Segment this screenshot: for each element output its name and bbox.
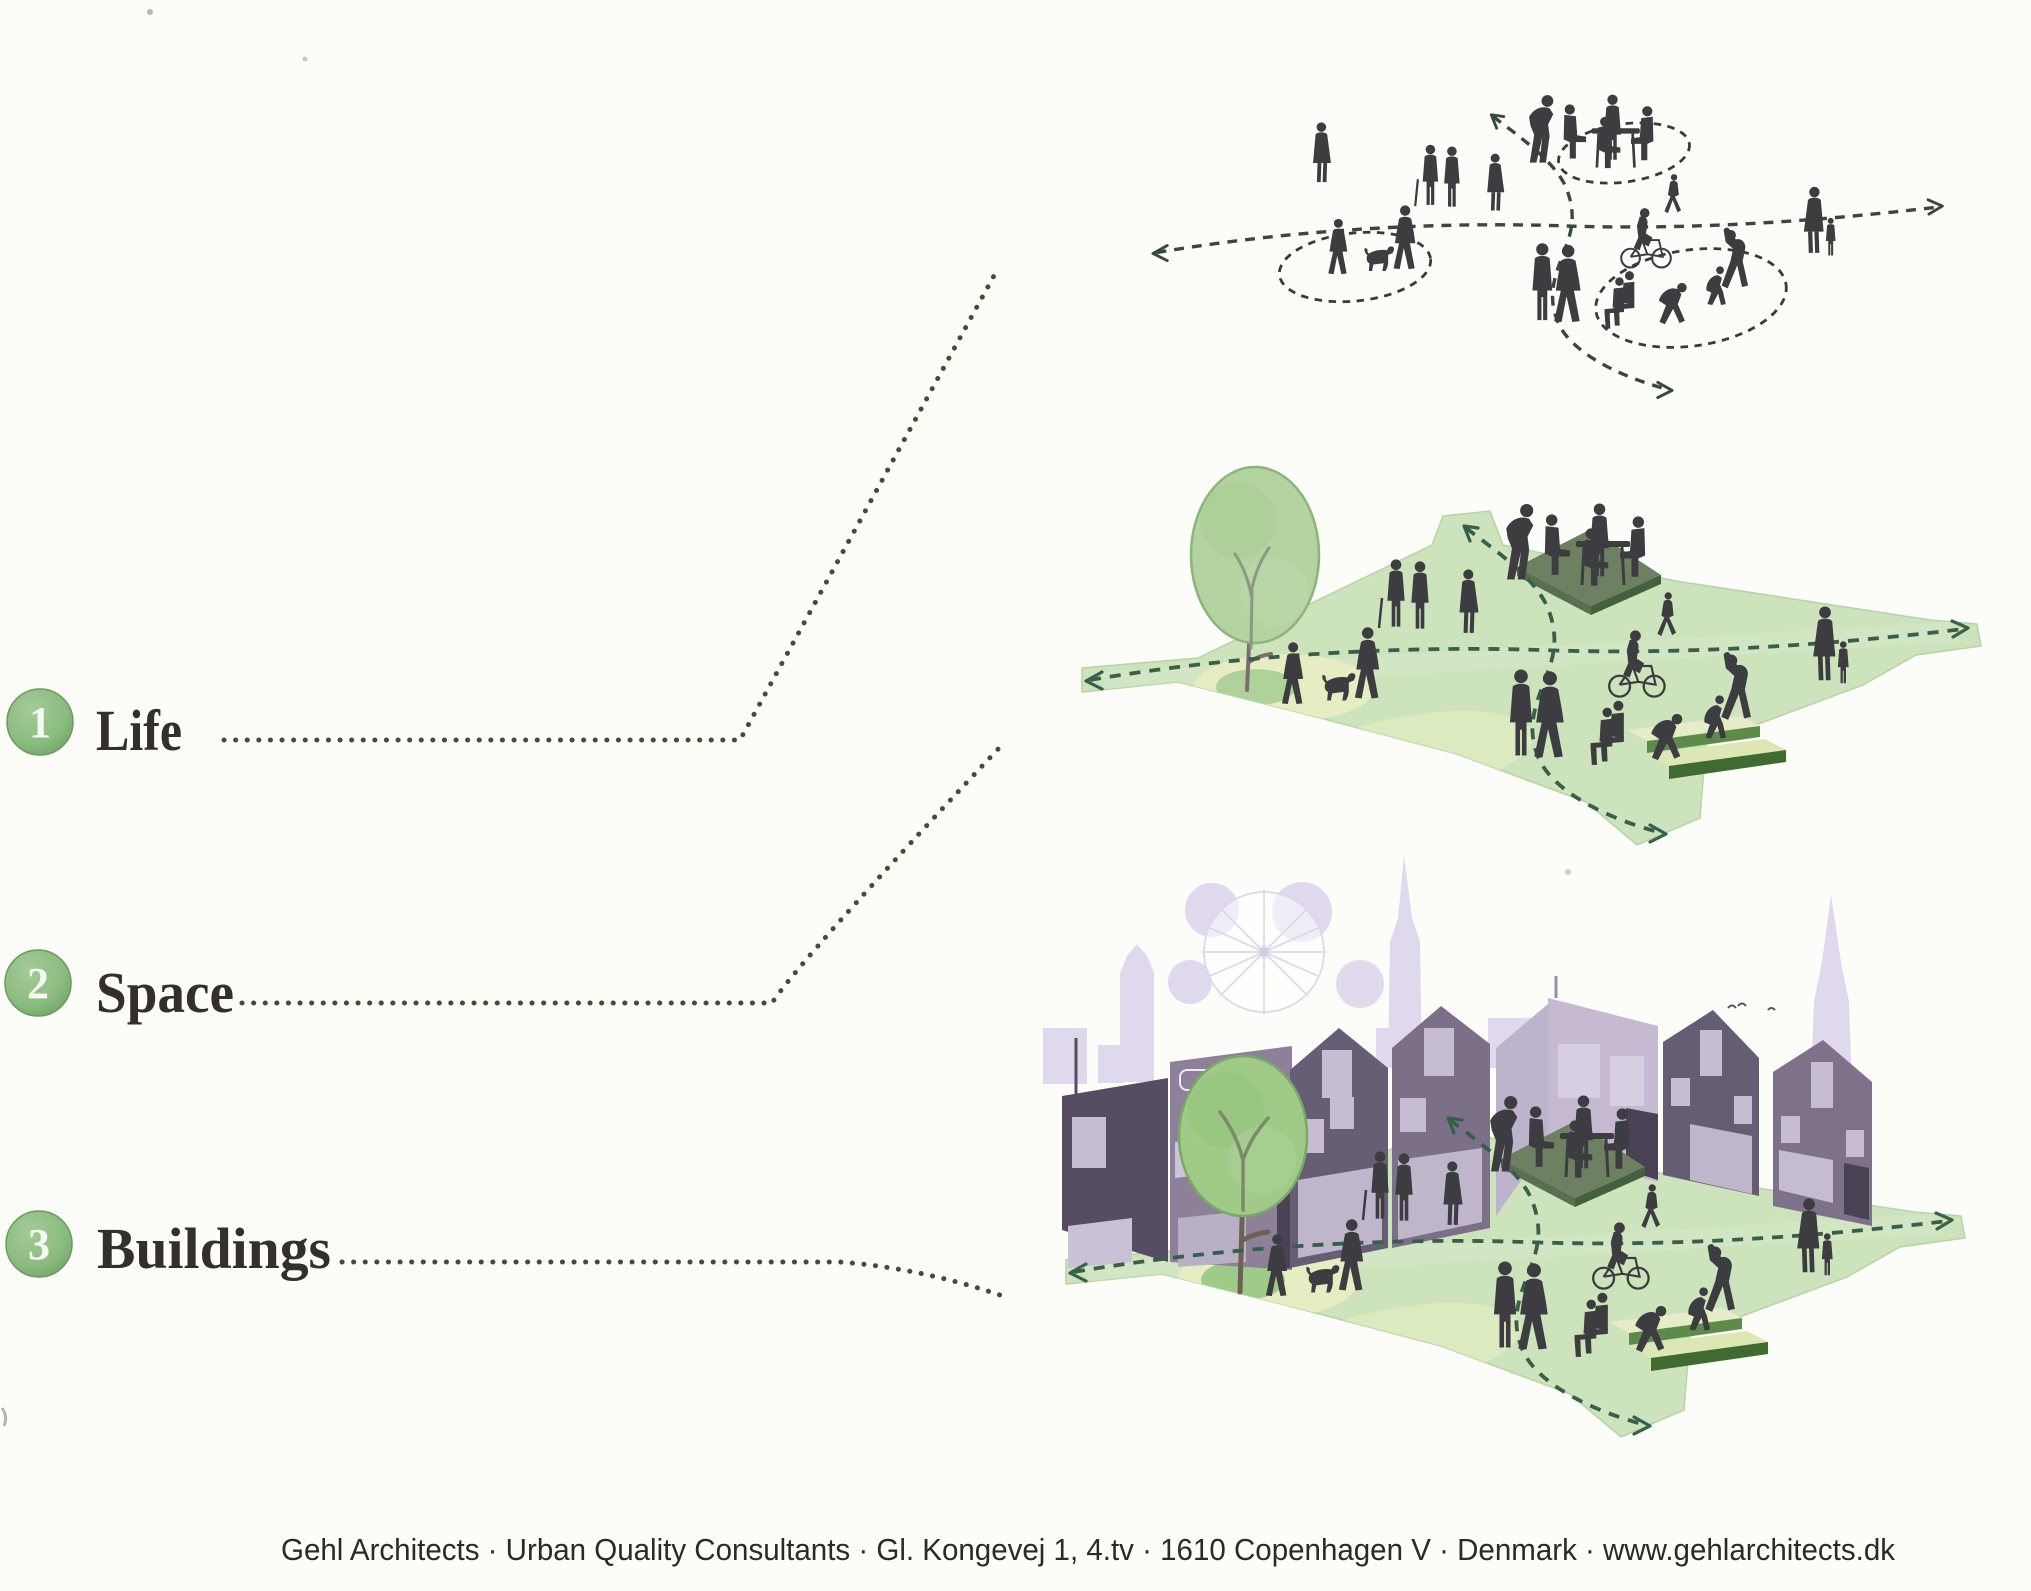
svg-text:3: 3 (28, 1220, 50, 1269)
svg-text:Gehl Architects · Urban Qualit: Gehl Architects · Urban Quality Consulta… (281, 1532, 1895, 1567)
svg-text:2: 2 (27, 959, 49, 1008)
svg-text:Life: Life (96, 698, 182, 763)
svg-text:Buildings: Buildings (97, 1216, 331, 1281)
svg-text:Space: Space (96, 960, 234, 1025)
svg-text:1: 1 (29, 698, 51, 747)
